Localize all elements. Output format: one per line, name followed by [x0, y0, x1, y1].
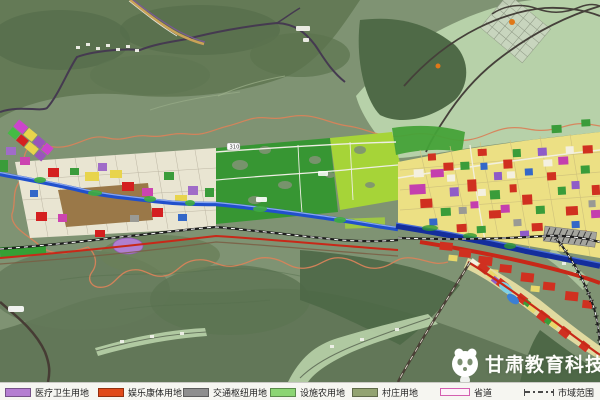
map-canvas: 310: [0, 0, 600, 382]
legend-bar: 医疗卫生用地 娱乐康体用地 交通枢纽用地 设施农用地 村庄用地 省道 市域范围: [0, 382, 600, 400]
road-number-label: 310: [230, 145, 240, 151]
legend-label: 设施农用地: [300, 386, 345, 399]
interchange-marker: [436, 64, 441, 69]
legend-item-medical: 医疗卫生用地: [5, 383, 89, 400]
legend-label: 医疗卫生用地: [35, 386, 89, 399]
city-boundary-swatch: [524, 389, 554, 396]
watermark: 甘肃教育科技: [448, 346, 600, 380]
legend-item-transport-hub: 交通枢纽用地: [183, 383, 267, 400]
legend-item-facility-agriculture: 设施农用地: [270, 383, 345, 400]
legend-label: 省道: [474, 386, 492, 399]
legend-label: 交通枢纽用地: [213, 386, 267, 399]
legend-item-village: 村庄用地: [352, 383, 418, 400]
map-image: 310: [0, 0, 600, 382]
provincial-road-swatch: [440, 388, 470, 396]
facility-agriculture-swatch: [270, 388, 296, 397]
medical-swatch: [5, 388, 31, 397]
legend-label: 娱乐康体用地: [128, 386, 182, 399]
village-swatch: [352, 388, 378, 397]
panda-logo-icon: [448, 346, 482, 380]
planning-map-screenshot: 310: [0, 0, 600, 400]
legend-item-recreation: 娱乐康体用地: [98, 383, 182, 400]
legend-item-provincial-road: 省道: [440, 383, 492, 400]
transport-hub-swatch: [183, 388, 209, 397]
legend-label: 市域范围: [558, 386, 594, 399]
watermark-text: 甘肃教育科技: [485, 350, 600, 377]
legend-item-city-boundary: 市域范围: [524, 383, 594, 400]
legend-label: 村庄用地: [382, 386, 418, 399]
recreation-swatch: [98, 388, 124, 397]
interchange-marker: [509, 19, 515, 25]
